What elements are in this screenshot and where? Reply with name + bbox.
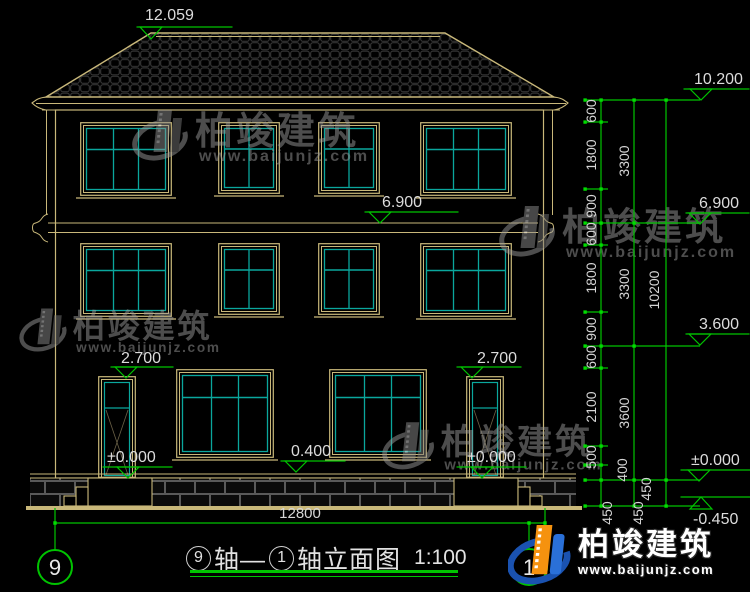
dim-label: 3600 xyxy=(616,397,632,428)
watermark-logo-icon xyxy=(130,110,190,164)
watermark: 柏竣建筑 www.baijunjz.com xyxy=(497,206,736,261)
dim-label: 900 xyxy=(583,194,599,218)
level-text: ±0.000 xyxy=(691,452,740,469)
dim-label: 3300 xyxy=(616,145,632,176)
title-underline xyxy=(190,570,458,573)
brand-logo-icon xyxy=(508,516,574,590)
watermark-name: 柏竣建筑 xyxy=(73,308,212,344)
dim-label: 500 xyxy=(583,445,599,469)
watermark-logo-icon xyxy=(497,206,557,260)
window xyxy=(319,244,380,315)
title-underline-thin xyxy=(190,576,458,577)
watermark-logo-icon xyxy=(17,309,68,355)
watermark-logo-icon xyxy=(380,422,436,472)
level-text: 2.700 xyxy=(477,350,517,367)
dim-label: 3300 xyxy=(616,268,632,299)
level-text: ±0.000 xyxy=(107,449,156,466)
roof-tiles xyxy=(46,33,554,97)
window xyxy=(421,244,512,317)
level-text: 10.200 xyxy=(694,71,743,88)
vertical-dimension-chains: 600 1800 900 600 1800 900 600 2100 500 4… xyxy=(583,98,700,524)
axis-number: 9 xyxy=(49,555,61,580)
window xyxy=(219,244,280,315)
watermark: 柏竣建筑 www.baijunjz.com xyxy=(130,110,369,165)
level-text: 6.900 xyxy=(382,194,422,211)
cad-elevation-screenshot: 柏竣建筑 www.baijunjz.com 柏竣建筑 www.baijunjz.… xyxy=(0,0,750,592)
watermark-name: 柏竣建筑 xyxy=(195,111,359,153)
window xyxy=(177,370,274,458)
dim-label: 400 xyxy=(614,458,630,482)
dim-label: 12800 xyxy=(279,505,321,522)
roof xyxy=(32,33,568,110)
dim-label: 600 xyxy=(583,99,599,123)
level-text: 0.400 xyxy=(291,443,331,460)
title-axis-bubble-1: 1 xyxy=(269,546,294,571)
level-text: 6.900 xyxy=(699,195,739,212)
brand-logo: 柏竣建筑 www.baijunjz.com xyxy=(508,514,750,592)
dim-label: 1800 xyxy=(583,139,599,170)
window xyxy=(421,123,512,196)
level-text: 12.059 xyxy=(145,7,194,24)
dim-label: 10200 xyxy=(646,270,662,309)
brand-url: www.baijunjz.com xyxy=(578,562,714,577)
level-marker-zero-chain: ±0.000 xyxy=(681,452,750,481)
title-axis-bubble-9: 9 xyxy=(186,546,211,571)
dim-label: 450 xyxy=(638,477,654,501)
brand-name: 柏竣建筑 xyxy=(578,529,714,562)
dim-label: 2100 xyxy=(583,391,599,422)
title-scale: 1:100 xyxy=(414,546,467,570)
elevation-drawing: 柏竣建筑 www.baijunjz.com 柏竣建筑 www.baijunjz.… xyxy=(0,0,750,592)
dim-label: 600 xyxy=(583,345,599,369)
watermark-url: www.baijunjz.com xyxy=(198,148,369,165)
level-text: ±0.000 xyxy=(467,449,516,466)
level-text: 2.700 xyxy=(121,350,161,367)
level-text: 3.600 xyxy=(699,316,739,333)
dim-label: 900 xyxy=(583,317,599,341)
window-sills xyxy=(76,196,516,198)
belt-molding-left xyxy=(33,214,49,242)
level-marker-eave: 10.200 xyxy=(684,71,749,100)
window xyxy=(81,244,172,317)
watermark: 柏竣建筑 www.baijunjz.com xyxy=(17,308,220,354)
level-marker-door-right: 2.700 xyxy=(457,350,521,378)
dim-label: 600 xyxy=(583,222,599,246)
dim-label: 1800 xyxy=(583,262,599,293)
level-marker-floor2-right: 3.600 xyxy=(686,316,749,345)
watermark-name: 柏竣建筑 xyxy=(441,422,593,462)
